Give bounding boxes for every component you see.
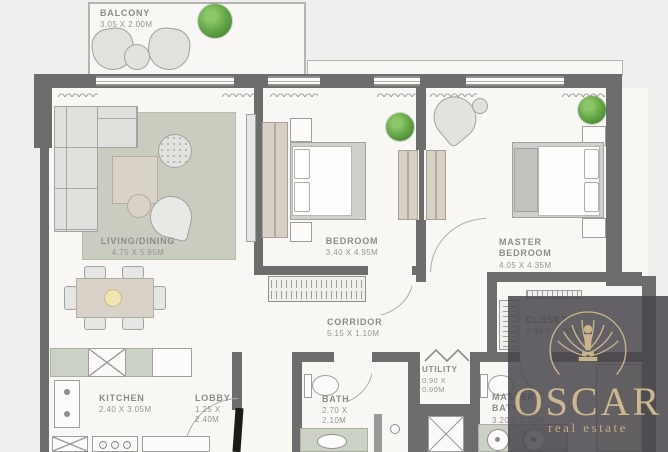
room-dims: 2.70 X 2.10M <box>322 406 364 426</box>
window-bedroom-right <box>374 76 420 86</box>
pillow-icon <box>294 149 310 179</box>
room-label-balcony: BALCONY 3.05 X 2.00M <box>100 8 152 30</box>
room-name: UTILITY <box>422 365 460 375</box>
room-label-corridor: CORRIDOR 5.15 X 1.10M <box>327 317 382 339</box>
table-centerpiece-icon <box>104 289 122 307</box>
watermark-brand: OSCAR <box>508 378 668 425</box>
wall-left <box>40 146 49 452</box>
room-name: MASTER BEDROOM <box>499 237 563 260</box>
wall-right-upper <box>606 86 622 283</box>
window-master <box>466 76 564 86</box>
storage-closet-icon <box>428 416 464 452</box>
kitchen-sink-icon <box>54 380 80 428</box>
wall-corridor-end <box>487 272 497 362</box>
room-label-master-bedroom: MASTER BEDROOM 4.05 X 4.35M <box>499 237 563 271</box>
room-label-utility: UTILITY 0.90 X 0.90M <box>422 365 460 395</box>
room-label-kitchen: KITCHEN 2.40 X 3.05M <box>99 393 151 415</box>
room-name: LOBBY <box>195 393 235 404</box>
room-name: KITCHEN <box>99 393 151 404</box>
shower-drain-icon <box>390 424 400 434</box>
plant-icon <box>578 96 606 124</box>
balcony-table-icon <box>124 44 150 70</box>
wall-master-closet <box>497 272 642 282</box>
room-label-bedroom: BEDROOM 3.40 X 4.95M <box>316 236 388 258</box>
ottoman-icon <box>158 134 192 168</box>
curtain-icon <box>270 89 318 97</box>
watermark-overlay: OSCAR real estate <box>508 296 668 452</box>
oscar-palm-logo-icon <box>546 304 630 388</box>
plant-icon <box>198 4 232 38</box>
kitchen-counter-icon <box>142 436 210 452</box>
wall-corridor-top-stub <box>412 266 426 275</box>
wardrobe-icon <box>262 122 288 238</box>
pillow-icon <box>584 149 599 179</box>
room-dims: 2.40 X 3.05M <box>99 405 151 415</box>
room-name: BATH <box>322 394 364 405</box>
sofa-icon <box>54 106 98 232</box>
room-label-lobby: LOBBY 1.25 X 2.40M <box>195 393 235 425</box>
wardrobe-icon <box>398 150 418 220</box>
dining-chair-icon <box>84 317 106 330</box>
bedroom-door-arc <box>368 275 412 315</box>
curtain-icon <box>58 89 98 97</box>
room-name: CORRIDOR <box>327 317 382 328</box>
window-balcony-door <box>96 76 234 86</box>
floor-plan: BALCONY 3.05 X 2.00M LIVING/DINING 4.75 … <box>0 0 668 452</box>
kitchen-cabinet-x-icon <box>52 436 88 452</box>
room-dims: 3.40 X 4.95M <box>316 248 388 258</box>
toilet-icon <box>312 375 339 396</box>
master-door-arc <box>430 218 486 272</box>
nightstand-icon <box>290 222 312 242</box>
side-table-icon <box>472 98 488 114</box>
room-name: BEDROOM <box>316 236 388 247</box>
curtain-icon <box>377 89 417 97</box>
stove-icon <box>92 436 138 452</box>
room-dims: 4.05 X 4.35M <box>499 261 563 271</box>
toilet-tank <box>304 374 312 398</box>
wall-bedroom-master-mid <box>419 150 424 220</box>
room-label-bath: BATH 2.70 X 2.10M <box>322 394 364 426</box>
utility-bifold-door-icon <box>424 348 472 362</box>
wall-corridor-top-left <box>254 266 368 275</box>
window-bedroom-left <box>268 76 320 86</box>
room-dims: 3.05 X 2.00M <box>100 20 152 30</box>
plant-icon <box>386 113 414 141</box>
room-name: BALCONY <box>100 8 152 19</box>
tv-console-icon <box>246 114 256 242</box>
dining-chair-icon <box>153 286 166 310</box>
kitchen-cabinet-x-icon <box>88 348 126 377</box>
toilet-tank <box>480 374 488 398</box>
room-label-living: LIVING/DINING 4.75 X 5.95M <box>92 236 184 258</box>
nightstand-icon <box>582 218 606 238</box>
nightstand-icon <box>290 118 312 142</box>
wall-bedroom-master-top <box>416 88 426 150</box>
side-table-icon <box>127 194 151 218</box>
room-dims: 0.90 X 0.90M <box>422 376 460 395</box>
curtain-icon <box>562 89 605 97</box>
corridor-shelf-icon <box>268 276 366 302</box>
bath-vanity-icon <box>300 428 368 452</box>
kitchen-cabinet-icon <box>152 348 192 377</box>
room-dims: 5.15 X 1.10M <box>327 329 382 339</box>
wall-left-thick <box>34 74 52 148</box>
room-name: LIVING/DINING <box>92 236 184 247</box>
bed-throw <box>514 148 538 212</box>
wardrobe-icon <box>426 150 446 220</box>
room-dims: 4.75 X 5.95M <box>92 248 184 258</box>
watermark-tagline: real estate <box>508 420 668 436</box>
room-dims: 1.25 X 2.40M <box>195 405 235 425</box>
shower-partition <box>374 414 382 452</box>
wall-bath-top-left <box>302 352 334 362</box>
pillow-icon <box>294 182 310 212</box>
dining-chair-icon <box>122 317 144 330</box>
pillow-icon <box>584 182 599 212</box>
